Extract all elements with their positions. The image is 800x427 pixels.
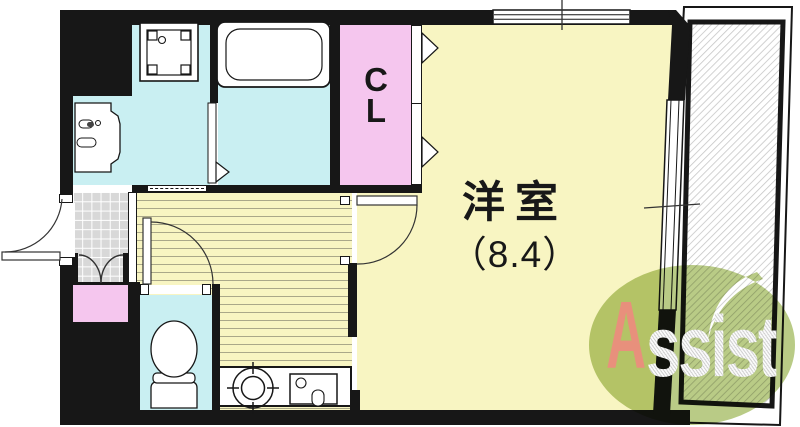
wall-bottom — [60, 410, 690, 425]
balcony-glass-door — [644, 100, 700, 310]
entrance-jamb-top — [59, 194, 73, 203]
kitchen-counter — [218, 366, 352, 407]
room-door-swing — [357, 196, 417, 264]
shoe-closet-post-right — [123, 253, 128, 285]
main-room-size: （8.4） — [420, 224, 610, 278]
wall-bathroom-closet — [330, 10, 340, 193]
closet-door-arrows — [422, 33, 438, 167]
wall-washroom-bathroom — [210, 10, 218, 103]
shoe-closet-post-left — [73, 253, 78, 285]
washroom-sliding-door — [147, 185, 207, 192]
wall-room-left — [348, 263, 357, 337]
logo-letter-a: A — [606, 288, 646, 384]
room-door-jamb-bottom — [340, 256, 350, 265]
logo-text: ssist — [646, 304, 776, 390]
toilet-jamb-right — [202, 284, 211, 295]
washroom — [132, 25, 210, 185]
entrance-opening — [58, 203, 75, 257]
toilet-room — [137, 295, 212, 410]
bathroom — [218, 25, 330, 185]
entrance-step — [128, 192, 137, 285]
closet-label-line1: C — [340, 64, 412, 95]
floor-plan: 洋室 （8.4） C L A ssist — [0, 0, 800, 427]
entrance-jamb-bottom — [59, 257, 73, 266]
wall-top — [60, 10, 676, 25]
closet-label: C L — [340, 64, 412, 127]
toilet-doorway — [149, 285, 202, 294]
main-room-label: 洋室 — [420, 168, 610, 230]
room-door-jamb-top — [340, 196, 350, 205]
entrance-tiles — [73, 192, 128, 285]
entrance-door-swing — [2, 199, 62, 260]
toilet-jamb-left — [140, 284, 149, 295]
washroom-extension — [73, 96, 132, 185]
closet-label-line2: L — [340, 95, 412, 126]
shoe-closet — [73, 285, 128, 322]
wall-top-left-core — [60, 10, 132, 96]
closet-door-track — [411, 25, 422, 185]
